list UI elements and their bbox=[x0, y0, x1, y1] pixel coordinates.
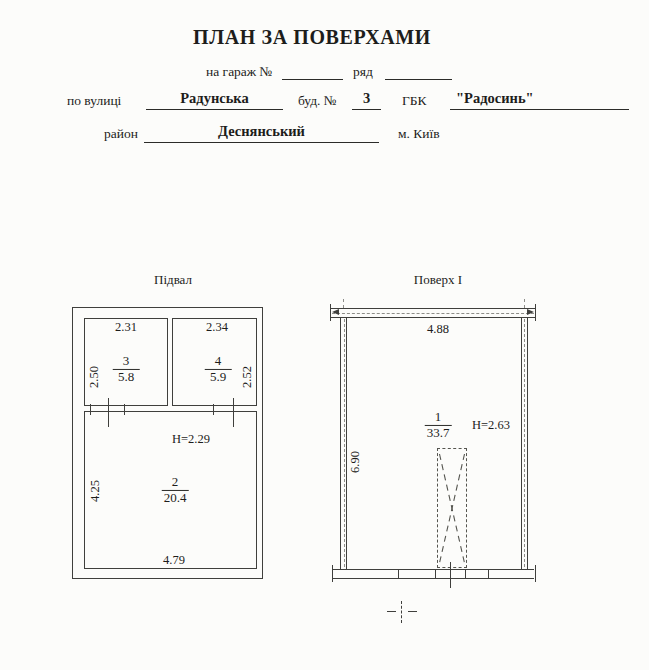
page-title: ПЛАН ЗА ПОВЕРХАМИ bbox=[193, 26, 431, 49]
room-area: 5.9 bbox=[205, 370, 232, 385]
district-value: Деснянський bbox=[144, 123, 379, 143]
room-number: 1 bbox=[425, 410, 452, 426]
wall-end-tick bbox=[535, 304, 536, 321]
wall-end-tick bbox=[535, 565, 536, 582]
wall-joint-tick bbox=[124, 404, 125, 415]
garage-number-field bbox=[282, 64, 343, 80]
garage-number-label: на гараж № bbox=[206, 64, 272, 80]
wall-axis-stub bbox=[343, 299, 344, 308]
basement-plan-title: Підвал bbox=[154, 272, 192, 288]
room-number-area-label: 4 5.9 bbox=[205, 354, 232, 384]
bottom-wall bbox=[332, 569, 534, 579]
room-number-area-label: 2 20.4 bbox=[162, 475, 189, 505]
dimension-arrow-icon bbox=[527, 309, 534, 315]
wall-axis-line bbox=[524, 319, 525, 567]
cross-mark-line bbox=[401, 601, 402, 623]
street-value: Радунська bbox=[146, 90, 283, 110]
room-area: 33.7 bbox=[425, 426, 452, 441]
dimension-label: 2.31 bbox=[115, 320, 137, 335]
wall-joint-tick bbox=[435, 570, 436, 578]
center-cross-mark bbox=[387, 601, 417, 623]
room-area: 20.4 bbox=[162, 491, 189, 506]
ceiling-height-label: Н=2.29 bbox=[172, 432, 210, 447]
dimension-label: 6.90 bbox=[348, 451, 363, 473]
coop-label: ГБК bbox=[402, 93, 427, 109]
door-opening-tick bbox=[233, 398, 234, 427]
dimension-label: 2.50 bbox=[87, 366, 102, 388]
street-label: по вулиці bbox=[67, 93, 121, 109]
dimension-label: 2.52 bbox=[240, 366, 255, 388]
dimension-label: 4.88 bbox=[427, 322, 449, 337]
wall-axis-line bbox=[344, 319, 345, 567]
floor1-plan-title: Поверх I bbox=[414, 272, 462, 288]
room-number-area-label: 1 33.7 bbox=[425, 410, 452, 440]
inspection-pit bbox=[437, 448, 467, 568]
document-page: ПЛАН ЗА ПОВЕРХАМИ на гараж № ряд по вули… bbox=[0, 0, 649, 670]
building-number-label: буд. № bbox=[298, 93, 337, 109]
wall-axis-stub bbox=[524, 299, 525, 308]
pit-center-tick bbox=[450, 562, 451, 588]
wall-axis-line bbox=[332, 313, 534, 314]
city-label: м. Київ bbox=[398, 126, 440, 142]
row-label: ряд bbox=[353, 64, 373, 80]
door-opening-tick bbox=[108, 398, 109, 427]
pit-cross-lines bbox=[438, 449, 466, 565]
dimension-arrow-icon bbox=[332, 309, 339, 315]
row-field bbox=[385, 64, 452, 80]
room-number: 4 bbox=[205, 354, 232, 370]
wall-joint-tick bbox=[488, 570, 489, 578]
dimension-label: 4.79 bbox=[163, 553, 185, 568]
dimension-label: 2.34 bbox=[206, 320, 228, 335]
floor1-plan: 4.88 6.90 Н=2.63 1 33.7 bbox=[330, 296, 542, 596]
district-label: район bbox=[104, 126, 138, 142]
building-number-value: 3 bbox=[352, 90, 381, 110]
left-wall bbox=[340, 317, 347, 569]
room-number: 2 bbox=[162, 475, 189, 491]
wall-joint-tick bbox=[398, 570, 399, 578]
cross-mark-line bbox=[387, 611, 396, 612]
top-wall bbox=[330, 308, 536, 318]
right-wall bbox=[521, 317, 528, 569]
room-number: 3 bbox=[113, 354, 140, 370]
room-number-area-label: 3 5.8 bbox=[113, 354, 140, 384]
dimension-label: 4.25 bbox=[88, 480, 103, 502]
wall-end-tick bbox=[332, 565, 333, 582]
basement-plan: 2.31 2.34 2.50 2.52 Н=2.29 4.25 4.79 3 5… bbox=[72, 307, 263, 579]
room-area: 5.8 bbox=[113, 370, 140, 385]
wall-joint-tick bbox=[465, 570, 466, 578]
wall-joint-tick bbox=[213, 404, 214, 415]
wall-joint-tick bbox=[90, 404, 91, 415]
ceiling-height-label: Н=2.63 bbox=[472, 418, 510, 433]
cross-mark-line bbox=[408, 611, 417, 612]
coop-value: "Радосинь" bbox=[450, 90, 629, 110]
